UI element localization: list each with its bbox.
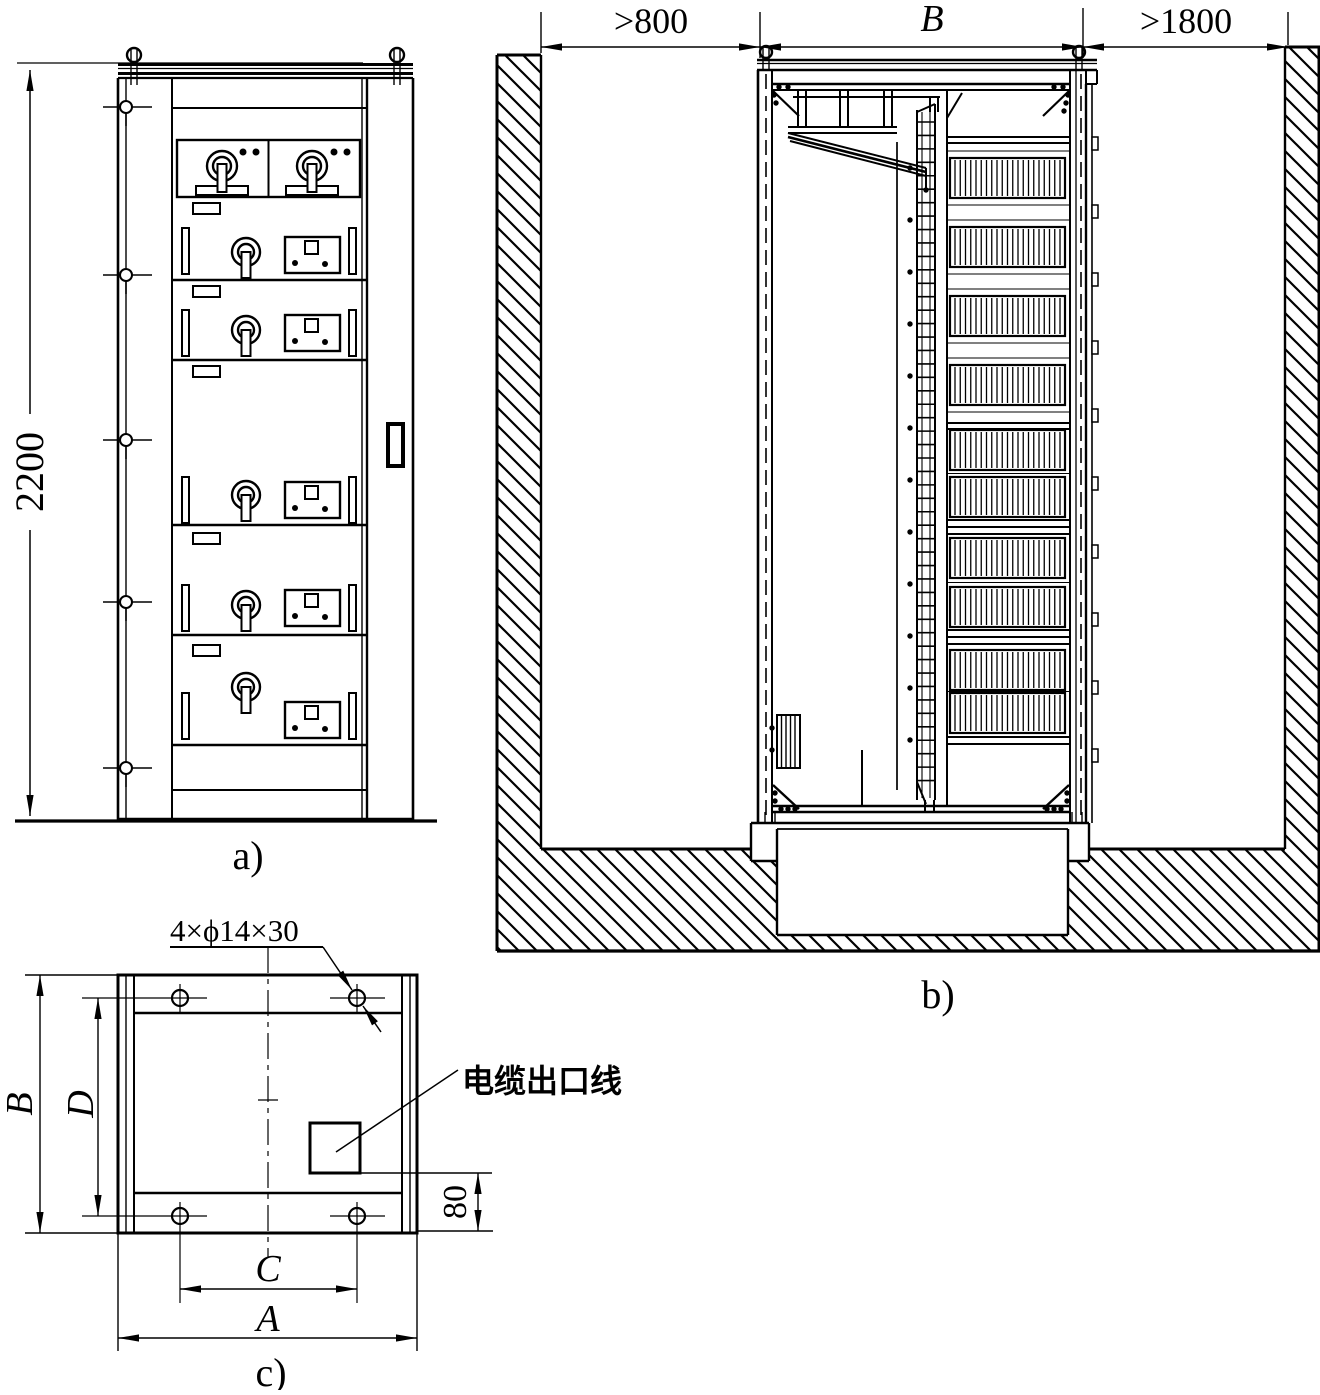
wall-left-hatch bbox=[497, 55, 541, 849]
caption-view-c: c) bbox=[255, 1350, 286, 1390]
switchgear-installation-drawing: 2200 bbox=[0, 0, 1320, 1390]
cable-outlet-label: 电缆出口线 bbox=[462, 1063, 622, 1099]
dim-label-hole-span-D: D bbox=[60, 1090, 102, 1118]
cable-trench bbox=[777, 828, 1068, 935]
dim-label-depth-B: B bbox=[0, 1092, 41, 1115]
dim-label-right-clearance: >1800 bbox=[1140, 1, 1232, 41]
dim-label-width-A: A bbox=[253, 1298, 280, 1340]
caption-view-a: a) bbox=[232, 833, 263, 878]
dim-label-outlet-offset-80: 80 bbox=[437, 1185, 474, 1219]
caption-view-b: b) bbox=[921, 972, 954, 1017]
dim-label-cabinet-width: B bbox=[920, 0, 943, 40]
mounting-holes-note: 4×ϕ14×30 bbox=[170, 913, 299, 948]
paper-background bbox=[0, 0, 1320, 1390]
dim-label-left-clearance: >800 bbox=[614, 1, 688, 41]
engineering-drawing-page: 2200 bbox=[0, 0, 1320, 1390]
wall-right-hatch bbox=[1285, 47, 1320, 849]
dim-label-hole-span-C: C bbox=[255, 1248, 281, 1290]
rotary-switch-handle[interactable] bbox=[308, 164, 317, 192]
dim-label-2200: 2200 bbox=[7, 432, 52, 512]
rotary-switch-handle[interactable] bbox=[218, 164, 227, 192]
